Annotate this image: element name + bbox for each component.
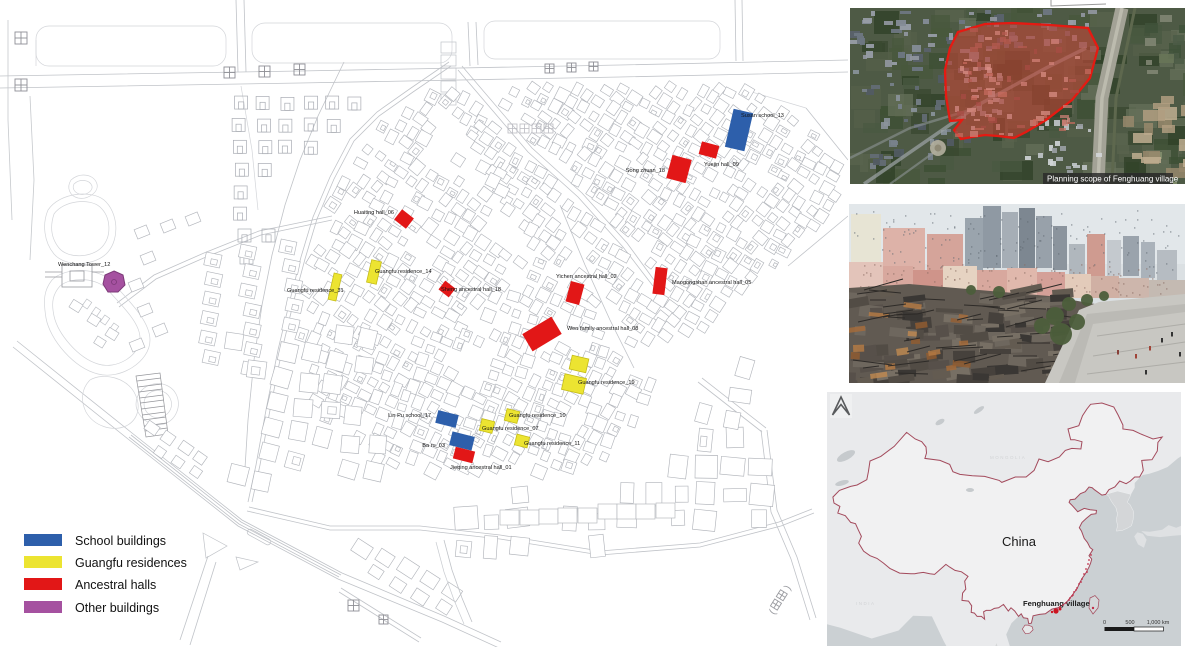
- svg-text:Yichen ancestral hall_02: Yichen ancestral hall_02: [556, 274, 617, 280]
- svg-text:Jieqing ancestral hall_01: Jieqing ancestral hall_01: [450, 465, 512, 471]
- svg-text:China: China: [1002, 534, 1037, 549]
- svg-text:Other buildings: Other buildings: [75, 601, 159, 615]
- svg-text:INDIA: INDIA: [856, 601, 876, 606]
- svg-text:Guangfu residence_31: Guangfu residence_31: [287, 288, 344, 294]
- svg-text:Maogongshan ancestral hall_05: Maogongshan ancestral hall_05: [672, 280, 751, 286]
- svg-text:MONGOLIA: MONGOLIA: [990, 455, 1026, 460]
- svg-text:Planning scope of Fenghuang vi: Planning scope of Fenghuang village: [1047, 175, 1179, 184]
- svg-text:School buildings: School buildings: [75, 534, 166, 548]
- svg-text:1,000 km: 1,000 km: [1147, 620, 1170, 626]
- svg-text:Guangfu residence_11: Guangfu residence_11: [524, 441, 580, 447]
- svg-text:Guangfu residences: Guangfu residences: [75, 556, 187, 570]
- svg-text:Lin Pu school_17: Lin Pu school_17: [388, 413, 431, 419]
- svg-text:0: 0: [1103, 620, 1106, 626]
- svg-text:Fenghuang village: Fenghuang village: [1023, 599, 1090, 608]
- svg-text:(: (: [767, 608, 778, 617]
- svg-text:Wenchang Tower_12: Wenchang Tower_12: [58, 262, 110, 268]
- svg-text:Sheng ancestral hall_18: Sheng ancestral hall_18: [441, 287, 501, 293]
- svg-text:Wen family ancestral hall_08: Wen family ancestral hall_08: [567, 326, 638, 332]
- svg-text:Ancestral halls: Ancestral halls: [75, 578, 156, 592]
- svg-text:Guangfu residence_19: Guangfu residence_19: [578, 380, 635, 386]
- svg-text:Yuejin hall_09: Yuejin hall_09: [704, 162, 739, 168]
- svg-text:Ba ru_03: Ba ru_03: [422, 443, 445, 449]
- svg-text:Susan school_13: Susan school_13: [741, 113, 784, 119]
- svg-text:Song zhuan_18: Song zhuan_18: [626, 168, 665, 174]
- svg-text:Guangfu residence_10: Guangfu residence_10: [509, 413, 566, 419]
- svg-text:Huaiting hall_06: Huaiting hall_06: [354, 210, 394, 216]
- svg-text:500: 500: [1125, 620, 1134, 626]
- svg-text:Guangfu residence_14: Guangfu residence_14: [375, 269, 432, 275]
- svg-text:): ): [783, 583, 794, 592]
- svg-text:Guangfu residence_07: Guangfu residence_07: [482, 426, 539, 432]
